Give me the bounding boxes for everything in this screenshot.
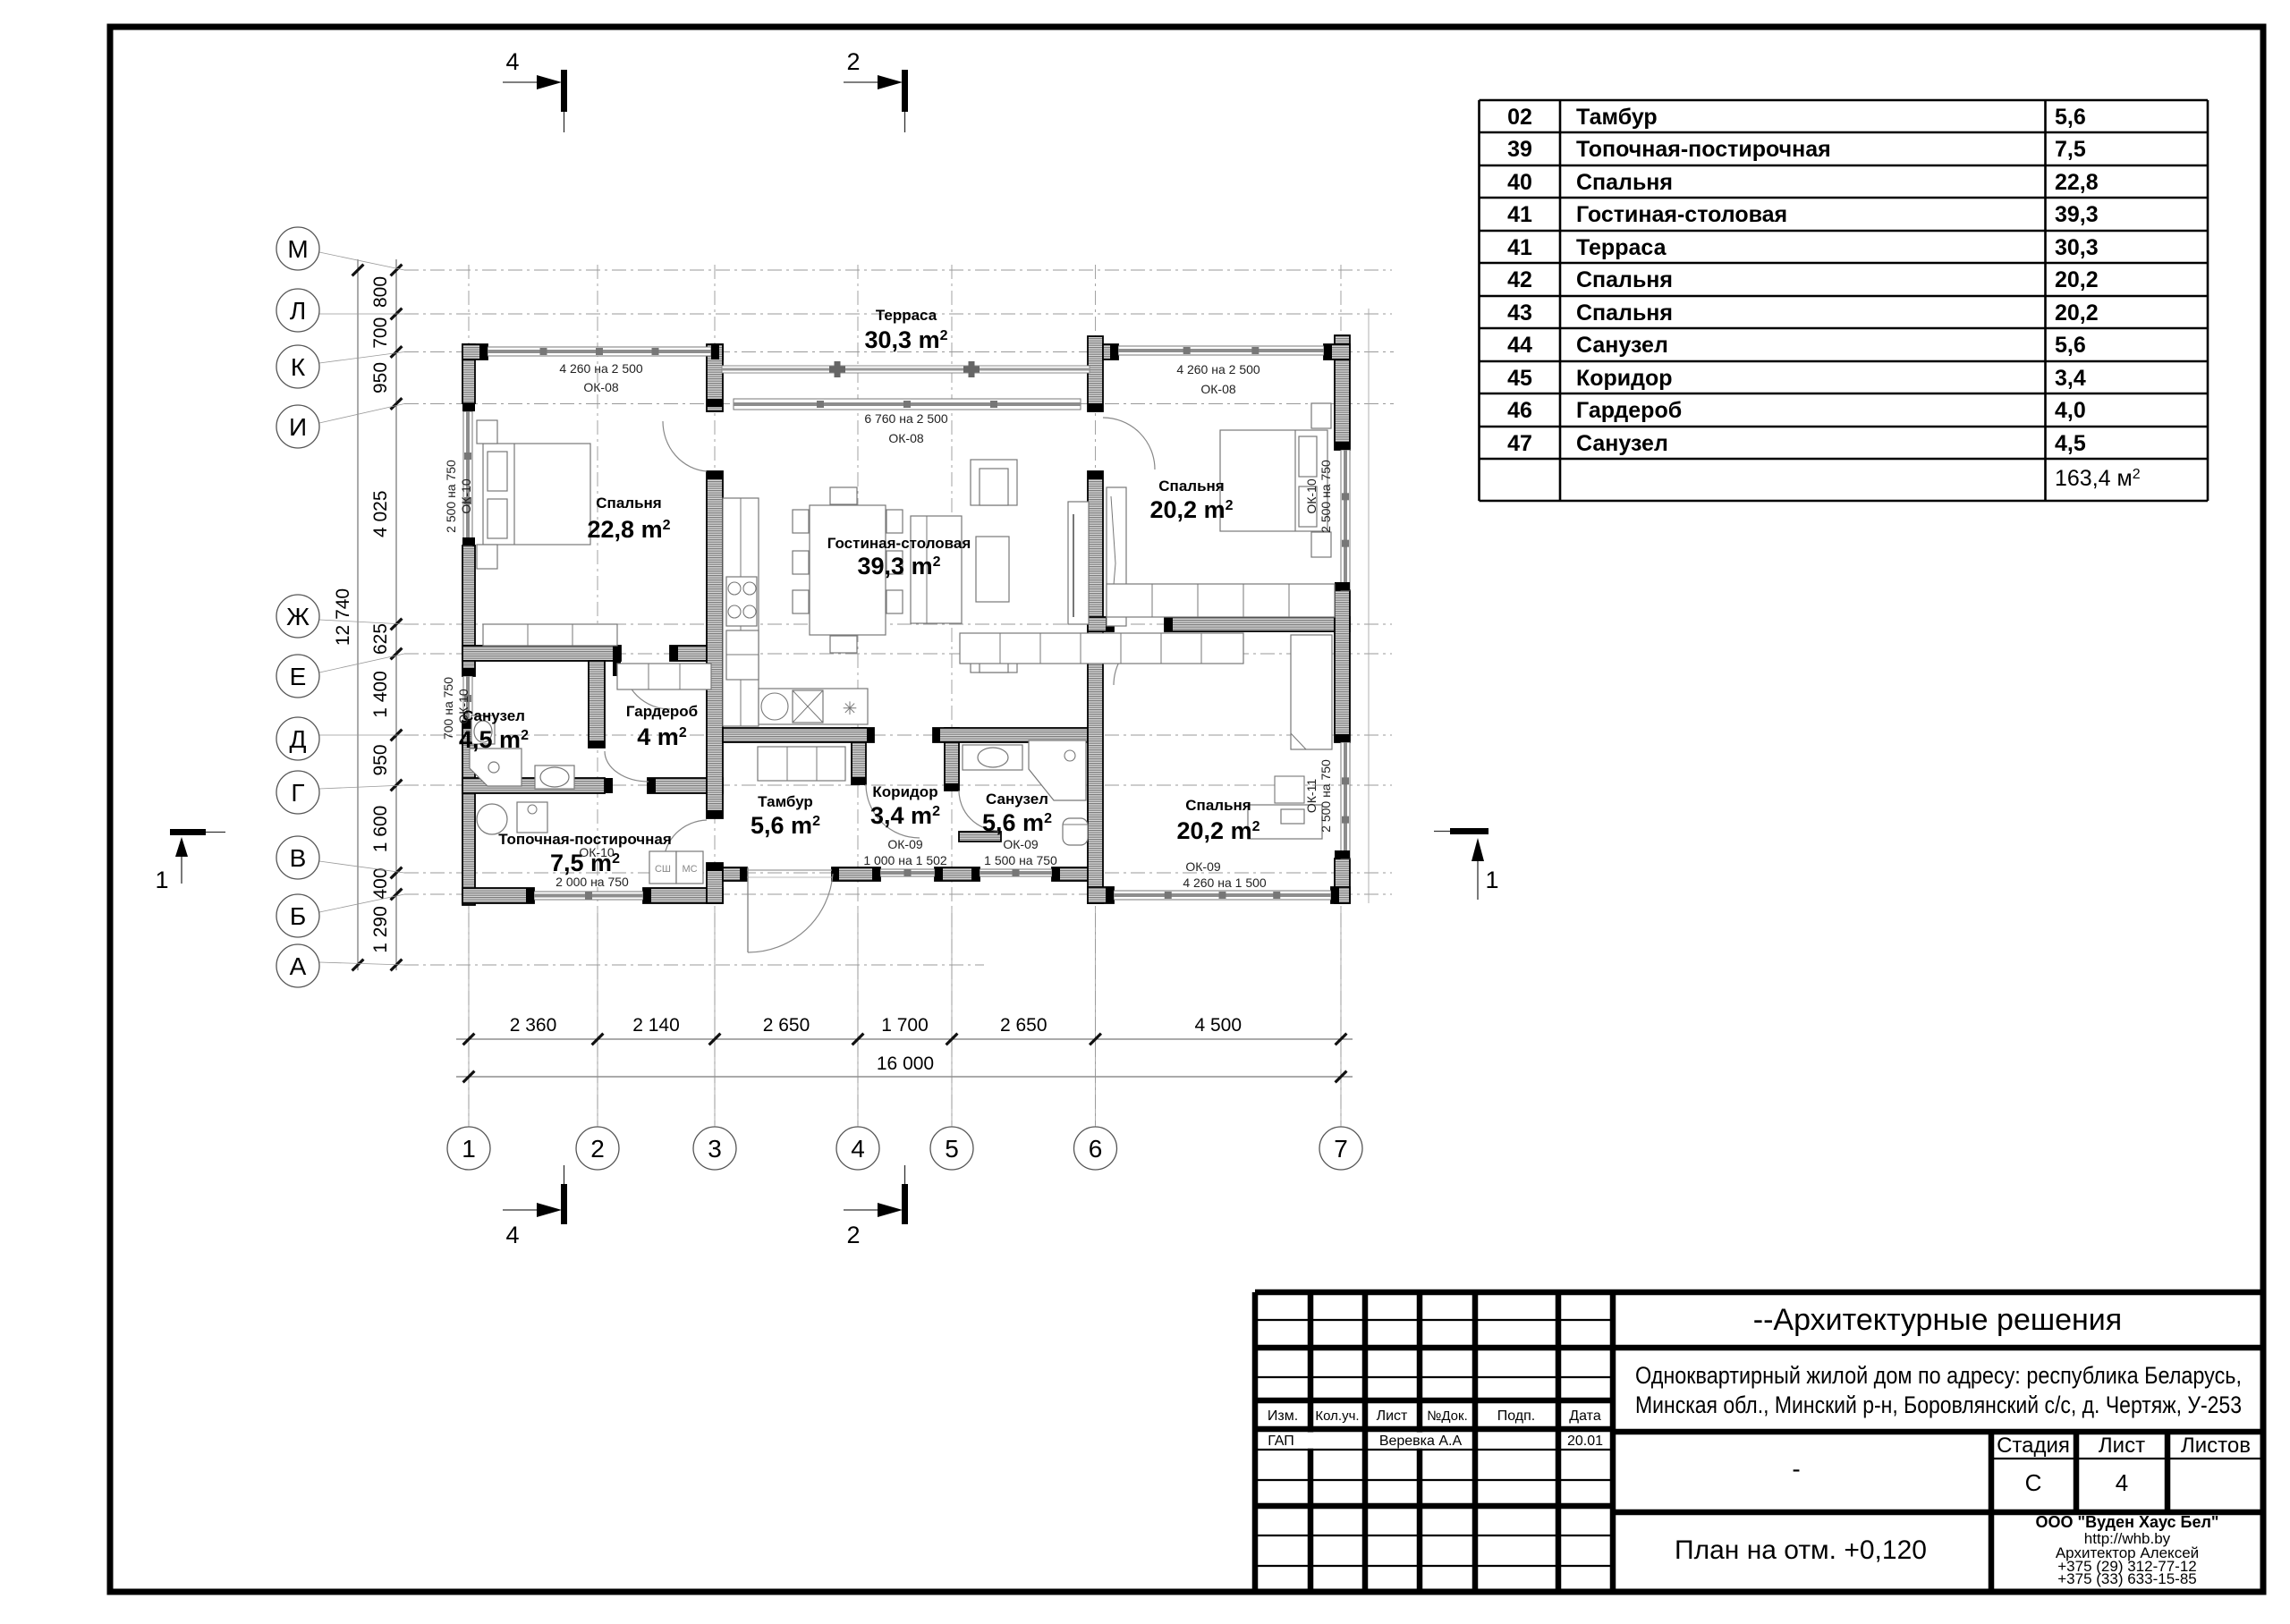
svg-text:16 000: 16 000 (877, 1053, 934, 1074)
svg-text:30,3: 30,3 (2055, 235, 2099, 260)
svg-text:30,3 m2: 30,3 m2 (865, 326, 948, 353)
svg-text:700 на 750: 700 на 750 (441, 677, 455, 740)
svg-text:Е: Е (290, 663, 307, 690)
svg-text:ОК-09: ОК-09 (887, 837, 922, 851)
svg-text:Лист: Лист (2099, 1434, 2145, 1458)
svg-text:2 650: 2 650 (1000, 1015, 1047, 1036)
svg-text:20,2 m2: 20,2 m2 (1177, 817, 1260, 844)
svg-text:5,6: 5,6 (2055, 333, 2086, 358)
svg-text:40: 40 (1507, 170, 1532, 195)
svg-text:2 000 на 750: 2 000 на 750 (556, 875, 629, 889)
svg-text:МС: МС (682, 864, 697, 875)
svg-text:1 600: 1 600 (370, 806, 391, 853)
svg-text:ОК-10: ОК-10 (579, 845, 614, 859)
svg-text:ОК-08: ОК-08 (888, 431, 923, 445)
svg-text:Г: Г (291, 779, 304, 807)
svg-text:20,2: 20,2 (2055, 267, 2099, 292)
svg-text:Спальня: Спальня (596, 495, 661, 512)
svg-text:4 260 на 2 500: 4 260 на 2 500 (1176, 362, 1260, 376)
svg-text:ОК-08: ОК-08 (583, 380, 618, 394)
svg-text:4 260 на 2 500: 4 260 на 2 500 (559, 361, 643, 376)
svg-text:Листов: Листов (2181, 1434, 2251, 1458)
svg-text:✳: ✳ (843, 699, 858, 719)
svg-text:-: - (1792, 1455, 1800, 1483)
svg-text:02: 02 (1507, 105, 1532, 130)
svg-text:1 400: 1 400 (370, 671, 391, 718)
svg-text:20,2 m2: 20,2 m2 (1150, 496, 1234, 523)
svg-text:6: 6 (1089, 1135, 1103, 1163)
svg-text:39,3: 39,3 (2055, 202, 2099, 227)
svg-text:4: 4 (505, 1222, 519, 1248)
svg-text:В: В (290, 844, 307, 872)
svg-text:4: 4 (505, 48, 519, 75)
svg-text:Тамбур: Тамбур (758, 793, 813, 810)
svg-text:47: 47 (1507, 431, 1532, 456)
svg-text:4: 4 (851, 1135, 865, 1163)
svg-text:Спальня: Спальня (1576, 300, 1673, 326)
svg-text:44: 44 (1507, 333, 1532, 358)
svg-text:ОК-10: ОК-10 (456, 689, 471, 723)
svg-text:Спальня: Спальня (1158, 478, 1224, 495)
svg-text:42: 42 (1507, 267, 1532, 292)
svg-text:Лист: Лист (1377, 1408, 1408, 1424)
svg-text:М: М (287, 235, 308, 263)
svg-text:А: А (290, 952, 307, 980)
svg-text:Л: Л (290, 297, 306, 325)
svg-text:41: 41 (1507, 235, 1532, 260)
svg-text:2 500 на 750: 2 500 на 750 (444, 460, 458, 533)
svg-text:5,6: 5,6 (2055, 105, 2086, 130)
svg-text:39: 39 (1507, 137, 1532, 162)
svg-text:ОК-08: ОК-08 (1200, 382, 1235, 396)
svg-text:2 500 на 750: 2 500 на 750 (1319, 759, 1333, 833)
svg-text:Ж: Ж (286, 603, 310, 630)
svg-text:45: 45 (1507, 366, 1532, 391)
svg-text:Терраса: Терраса (876, 307, 937, 324)
svg-text:План на отм. +0,120: План на отм. +0,120 (1675, 1535, 1927, 1565)
svg-text:Гостиная-столовая: Гостиная-столовая (827, 535, 971, 552)
svg-text:Изм.: Изм. (1268, 1408, 1298, 1424)
svg-text:800: 800 (370, 276, 391, 308)
svg-text:Спальня: Спальня (1185, 797, 1251, 814)
svg-text:7,5: 7,5 (2055, 137, 2086, 162)
svg-text:950: 950 (370, 362, 391, 393)
svg-text:1 700: 1 700 (881, 1015, 929, 1036)
svg-text:2 650: 2 650 (763, 1015, 810, 1036)
svg-text:Санузел: Санузел (462, 707, 525, 724)
svg-text:Гардероб: Гардероб (1576, 398, 1682, 423)
svg-text:ОК-11: ОК-11 (1304, 779, 1319, 813)
svg-text:1: 1 (462, 1135, 476, 1163)
svg-text:Б: Б (290, 902, 306, 930)
svg-text:С: С (2025, 1469, 2042, 1496)
svg-text:Спальня: Спальня (1576, 267, 1673, 292)
svg-text:625: 625 (370, 623, 391, 655)
svg-text:163,4 м2: 163,4 м2 (2055, 466, 2141, 491)
svg-text:И: И (289, 413, 307, 441)
svg-text:2 500 на 750: 2 500 на 750 (1319, 460, 1333, 533)
svg-text:2: 2 (846, 48, 860, 75)
svg-text:Спальня: Спальня (1576, 170, 1673, 195)
svg-text:41: 41 (1507, 202, 1532, 227)
svg-text:Подп.: Подп. (1497, 1408, 1536, 1424)
svg-text:ОК-10: ОК-10 (1304, 478, 1319, 513)
svg-text:5,6 m2: 5,6 m2 (982, 809, 1052, 836)
svg-text:Коридор: Коридор (1576, 366, 1673, 391)
svg-text:700: 700 (370, 317, 391, 349)
svg-text:46: 46 (1507, 398, 1532, 423)
svg-text:3: 3 (708, 1135, 722, 1163)
svg-text:1: 1 (155, 867, 168, 893)
svg-text:Гостиная-столовая: Гостиная-столовая (1576, 202, 1787, 227)
svg-text:Стадия: Стадия (1997, 1434, 2070, 1458)
svg-text:Санузел: Санузел (1576, 333, 1668, 358)
svg-text:Кол.уч.: Кол.уч. (1315, 1408, 1359, 1424)
svg-text:ООО "Вуден Хаус Бел": ООО "Вуден Хаус Бел" (2036, 1513, 2219, 1531)
svg-text:5,6 m2: 5,6 m2 (751, 812, 820, 839)
svg-text:Санузел: Санузел (986, 791, 1048, 808)
svg-text:12 740: 12 740 (333, 588, 353, 646)
svg-text:СШ: СШ (655, 864, 671, 875)
svg-text:4,5: 4,5 (2055, 431, 2086, 456)
svg-text:Коридор: Коридор (872, 783, 937, 800)
svg-text:7: 7 (1334, 1135, 1348, 1163)
svg-text:К: К (291, 353, 306, 381)
svg-text:3,4: 3,4 (2055, 366, 2086, 391)
svg-text:1: 1 (1485, 867, 1498, 893)
svg-text:Дата: Дата (1569, 1408, 1601, 1424)
svg-text:ОК-09: ОК-09 (1003, 837, 1038, 851)
svg-text:1 290: 1 290 (370, 906, 391, 953)
svg-text:6 760 на 2 500: 6 760 на 2 500 (864, 411, 948, 426)
svg-text:Топочная-постирочная: Топочная-постирочная (1576, 137, 1831, 162)
svg-text:Д: Д (290, 725, 307, 753)
svg-text:--Архитектурные решения: --Архитектурные решения (1753, 1303, 2122, 1337)
svg-text:2: 2 (846, 1222, 860, 1248)
svg-text:22,8 m2: 22,8 m2 (588, 516, 671, 543)
svg-text:Гардероб: Гардероб (626, 703, 698, 720)
svg-text:Веревка А.А: Веревка А.А (1379, 1434, 1463, 1449)
svg-text:ОК-10: ОК-10 (459, 478, 473, 513)
svg-text:Санузел: Санузел (1576, 431, 1668, 456)
svg-text:2 140: 2 140 (632, 1015, 680, 1036)
svg-text:400: 400 (370, 867, 391, 899)
svg-text:4 260 на 1 500: 4 260 на 1 500 (1183, 875, 1267, 890)
svg-text:20,2: 20,2 (2055, 300, 2099, 326)
svg-text:№Док.: №Док. (1427, 1408, 1468, 1424)
svg-text:5: 5 (945, 1135, 959, 1163)
svg-text:ОК-09: ОК-09 (1185, 859, 1220, 874)
svg-text:+375 (33) 633-15-85: +375 (33) 633-15-85 (2057, 1570, 2196, 1587)
svg-text:22,8: 22,8 (2055, 170, 2099, 195)
svg-text:Минская обл., Минский р-н, Бор: Минская обл., Минский р-н, Боровлянский … (1635, 1391, 2242, 1418)
svg-text:1 000 на 1 502: 1 000 на 1 502 (863, 853, 947, 867)
svg-text:2 360: 2 360 (510, 1015, 557, 1036)
svg-text:4 025: 4 025 (370, 490, 391, 537)
svg-text:Одноквартирный жилой дом по а: Одноквартирный жилой дом по адресу: респ… (1635, 1362, 2242, 1389)
svg-text:4,5 m2: 4,5 m2 (459, 726, 529, 753)
svg-text:4 500: 4 500 (1194, 1015, 1242, 1036)
svg-text:20.01: 20.01 (1567, 1434, 1603, 1449)
svg-text:43: 43 (1507, 300, 1532, 326)
svg-text:4: 4 (2116, 1469, 2128, 1496)
svg-text:2: 2 (590, 1135, 605, 1163)
svg-text:3,4 m2: 3,4 m2 (870, 802, 940, 829)
svg-text:39,3 m2: 39,3 m2 (858, 553, 941, 579)
svg-text:4,0: 4,0 (2055, 398, 2086, 423)
svg-text:ГАП: ГАП (1268, 1434, 1294, 1449)
svg-text:1 500 на 750: 1 500 на 750 (984, 853, 1057, 867)
svg-text:Терраса: Терраса (1576, 235, 1667, 260)
svg-text:950: 950 (370, 744, 391, 775)
svg-text:Тамбур: Тамбур (1576, 105, 1658, 130)
